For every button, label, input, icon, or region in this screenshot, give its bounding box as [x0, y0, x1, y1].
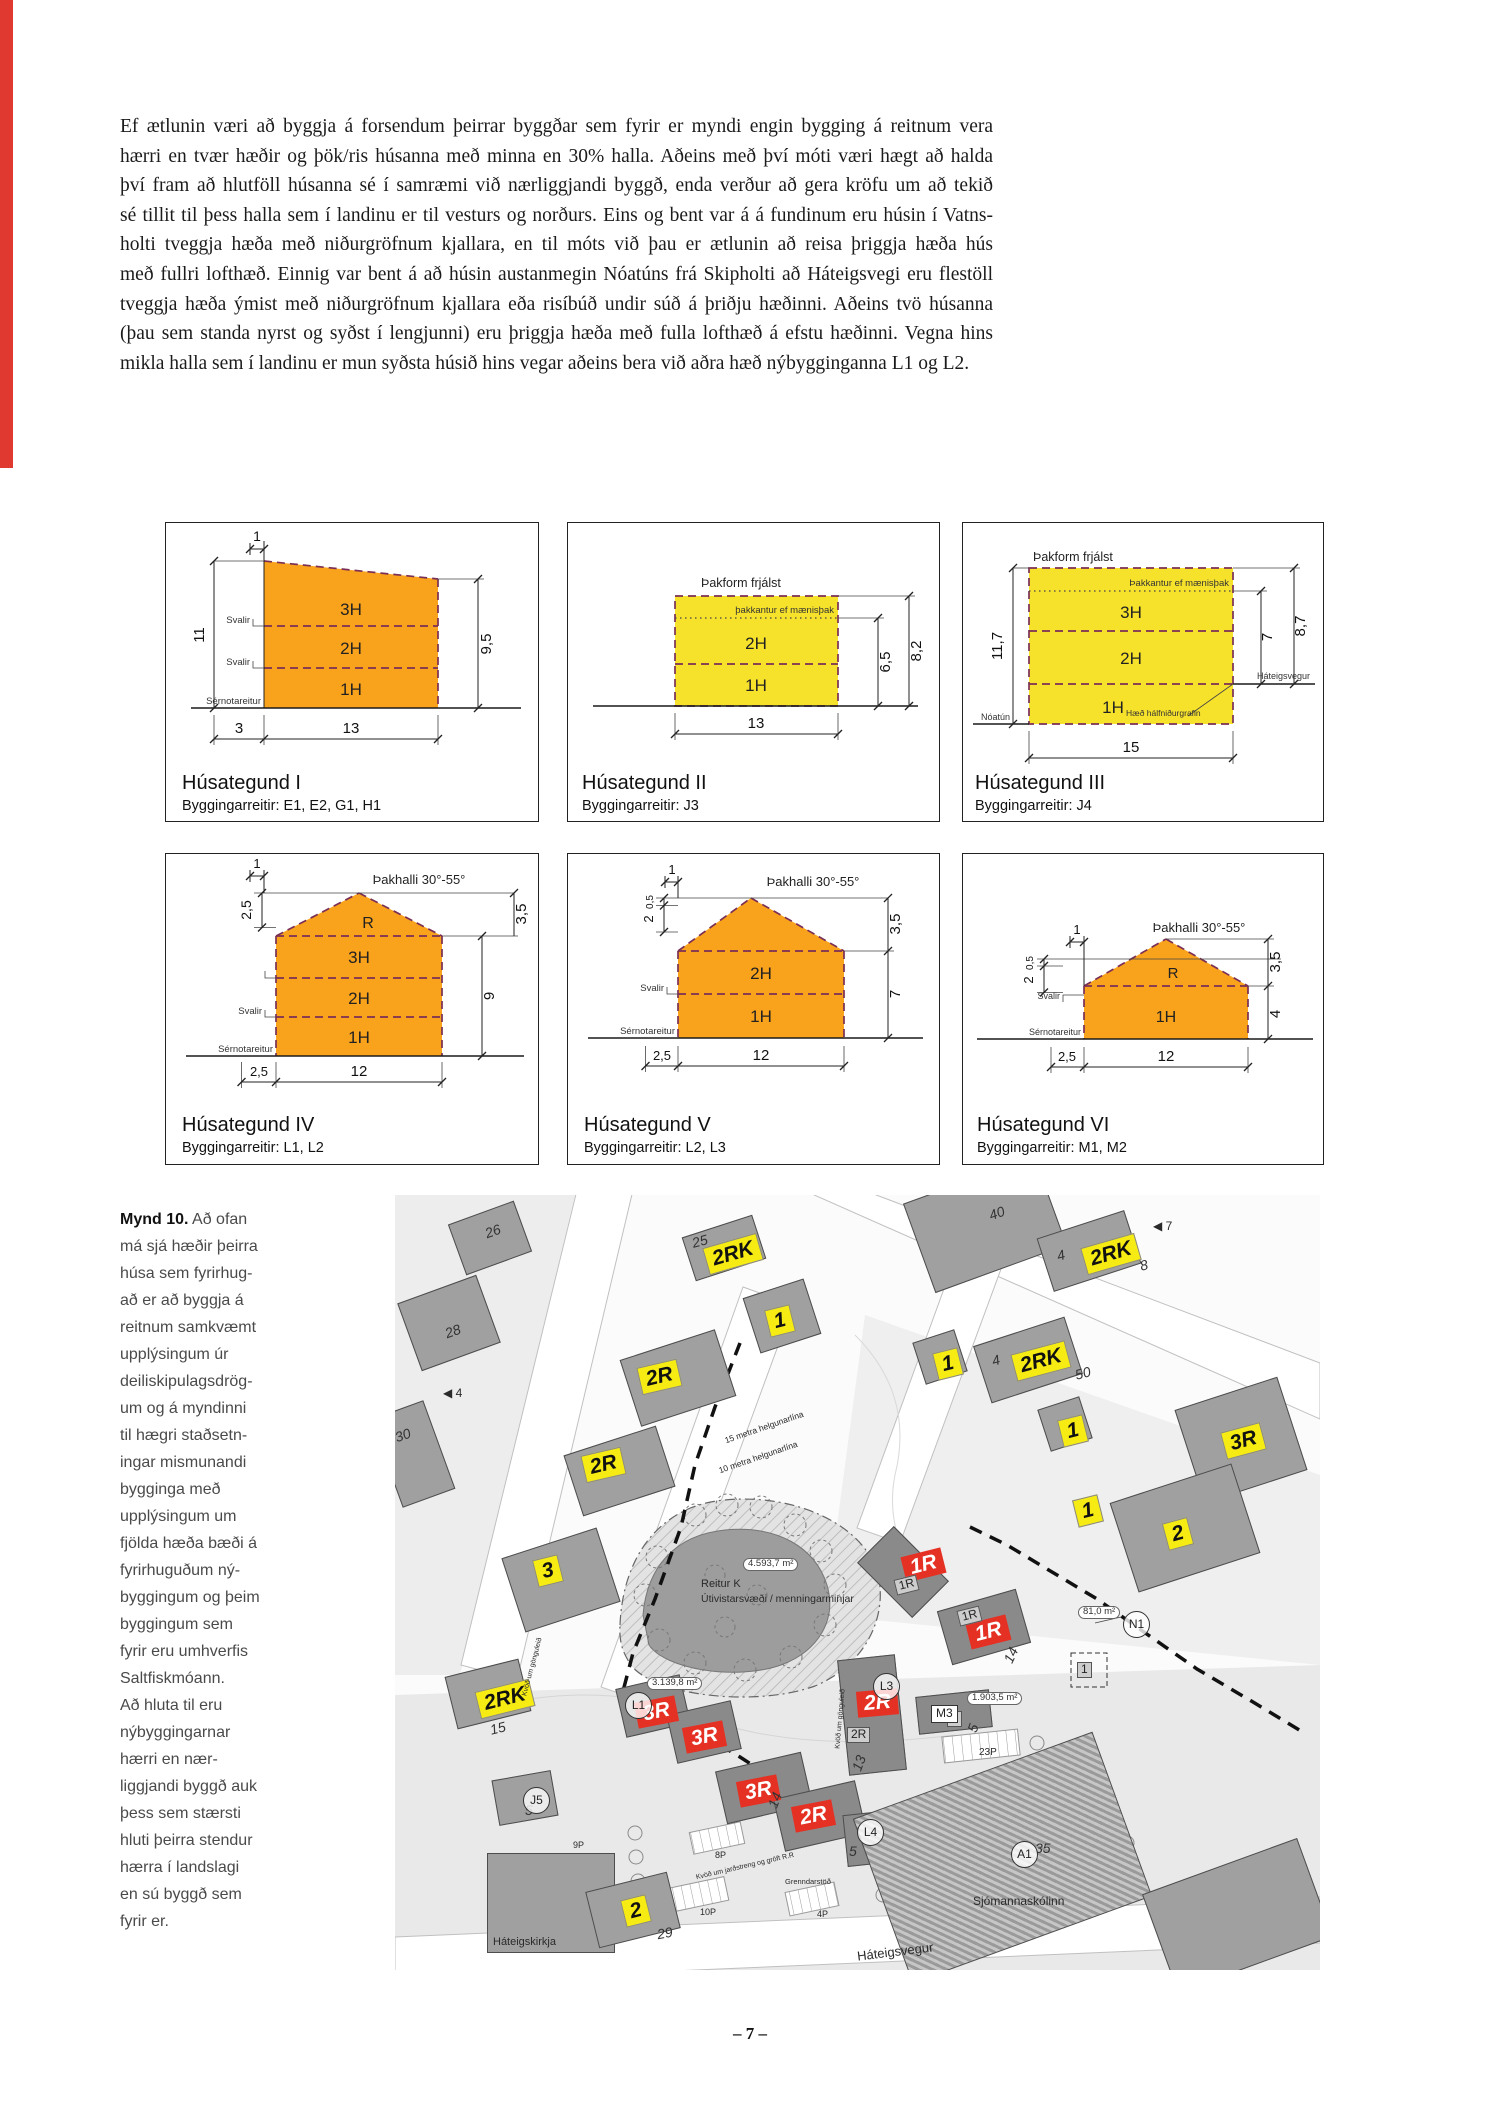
sernotareitur-label: Sérnotareitur	[620, 1026, 675, 1037]
map-label-l1: L1	[625, 1692, 652, 1719]
diagram-title: Húsategund V	[584, 1114, 711, 1136]
street-label-hateigsvegur: Háteigsvegur	[1257, 671, 1310, 681]
svg-text:1H: 1H	[750, 1007, 772, 1026]
roof-note: Þakhalli 30°-55°	[767, 874, 860, 889]
map-label-1: 1	[932, 1347, 964, 1381]
svg-text:7: 7	[1259, 633, 1276, 641]
map-label-13: 13	[849, 1753, 869, 1773]
roof-note: Þakform frjálst	[701, 576, 781, 590]
map-label-1r: 1R	[893, 1574, 919, 1595]
map-label-1: 1	[764, 1304, 796, 1338]
map-label-2rk: 2RK	[1080, 1233, 1142, 1275]
map-label-2: 2	[620, 1894, 652, 1928]
roof-label: R	[1168, 965, 1179, 982]
side-labels: Svalir Sérnotareitur	[218, 971, 276, 1055]
diagram-box-husategund-i: Svalir Svalir Sérnotareitur 3H 2H 1H 1 1…	[165, 522, 539, 822]
map-label-10-metra-helgunarl-na: 10 metra helgunarlína	[718, 1440, 799, 1476]
svg-text:1H: 1H	[1156, 1009, 1176, 1026]
diagram-husategund-vi-drawing: Svalir Sérnotareitur Þakhalli 30°-55° R …	[963, 854, 1320, 1161]
map-label-l3: L3	[873, 1673, 900, 1700]
diagram-subtitle: Byggingarreitir: M1, M2	[977, 1140, 1127, 1156]
svg-text:1: 1	[1073, 922, 1080, 937]
map-label-kv-um-jar-streng-og-gr-ft-r-r: Kvöð um jarðstreng og gröft R.R	[695, 1852, 795, 1882]
map-label-5: 5	[849, 1843, 857, 1859]
svg-text:15: 15	[1123, 739, 1140, 756]
diagram-subtitle: Byggingarreitir: E1, E2, G1, H1	[182, 798, 381, 814]
map-label-81-0-m: 81,0 m²	[1078, 1606, 1120, 1619]
paragraph-line: mikla halla sem í landinu er mun syðsta …	[120, 349, 993, 379]
svg-text:2,5: 2,5	[653, 1048, 671, 1063]
paragraph-line: því fram að hlutföll húsanna sé í samræm…	[120, 171, 993, 201]
svg-text:3H: 3H	[348, 948, 370, 967]
figure-caption-text: Að ofan má sjá hæðir þeirra húsa sem fyr…	[120, 1211, 260, 1930]
map-label-8p: 8P	[715, 1850, 726, 1860]
map-label-4p: 4P	[817, 1909, 828, 1919]
svg-text:1: 1	[253, 528, 261, 544]
roof-note: Þakform frjálst	[1033, 550, 1113, 564]
page-number: – 7 –	[700, 2024, 800, 2044]
map-label-14: 14	[1000, 1645, 1021, 1666]
map-label-1: 1	[1057, 1414, 1089, 1448]
map-label-kv-um-g-ngulei: Kvöð um gönguleið	[834, 1689, 847, 1749]
street-label-noatun: Nóatún	[981, 712, 1010, 722]
roof-label: R	[362, 915, 374, 932]
svg-text:11,7: 11,7	[989, 632, 1006, 660]
map-label-50: 50	[1073, 1363, 1092, 1383]
svg-text:7: 7	[887, 990, 904, 998]
map-label-l4: L4	[857, 1819, 884, 1846]
map-label-26: 26	[483, 1221, 503, 1241]
svg-text:1H: 1H	[1102, 698, 1124, 717]
map-label-1: 1	[1072, 1494, 1104, 1528]
svalir-label: Svalir	[226, 615, 250, 626]
map-label-7: ◀ 7	[1153, 1220, 1172, 1234]
diagram-box-husategund-iv: Svalir Sérnotareitur Þakhalli 30°-55° R …	[165, 853, 539, 1165]
diagram-subtitle: Byggingarreitir: L2, L3	[584, 1140, 726, 1156]
map-label-sj-mannask-linn: Sjómannaskólinn	[973, 1895, 1064, 1909]
map-label-a1: A1	[1011, 1841, 1038, 1868]
map-label-40: 40	[987, 1203, 1007, 1223]
diagram-husategund-iv-drawing: Svalir Sérnotareitur Þakhalli 30°-55° R …	[166, 854, 535, 1161]
svg-text:3,5: 3,5	[887, 914, 904, 935]
svalir-label: Svalir	[238, 1006, 262, 1017]
map-label-4: 4	[990, 1351, 1002, 1369]
map-label-3-139-8-m: 3.139,8 m²	[647, 1677, 702, 1690]
map-label-15: 15	[488, 1718, 507, 1737]
diagram-subtitle: Byggingarreitir: J4	[975, 798, 1092, 814]
side-labels: Svalir Sérnotareitur	[620, 983, 678, 1037]
map-label-4: ◀ 4	[443, 1387, 462, 1401]
svg-text:2H: 2H	[340, 639, 362, 658]
roof-note: Þakhalli 30°-55°	[373, 872, 466, 887]
map-label-23p: 23P	[979, 1747, 997, 1759]
svg-text:8,7: 8,7	[1292, 616, 1309, 637]
paragraph-line: (þau sem standa nyrst og syðst í lengjun…	[120, 319, 993, 349]
svg-text:1H: 1H	[348, 1028, 370, 1047]
side-labels: Svalir Svalir Sérnotareitur	[206, 615, 264, 707]
svg-text:13: 13	[343, 720, 360, 737]
half-buried-note: Hæð hálfniðurgrafin	[1126, 708, 1201, 718]
intro-paragraph: Ef ætlunin væri að byggja á forsendum þe…	[120, 112, 993, 378]
site-plan-map: 2RK12R2R32RK2RK13R1122RK21R1R2R3R3R3R2R2…	[395, 1195, 1320, 1970]
svg-text:2H: 2H	[1120, 649, 1142, 668]
svg-text:3: 3	[235, 720, 243, 737]
map-label-kv-um-g-ngulei: Kvöð um gönguleið	[521, 1637, 544, 1697]
map-label-2r: 2R	[580, 1447, 626, 1484]
diagram-box-husategund-v: Svalir Sérnotareitur Þakhalli 30°-55° 2H…	[567, 853, 940, 1165]
diagram-subtitle: Byggingarreitir: J3	[582, 798, 699, 814]
svg-text:13: 13	[748, 715, 765, 732]
svg-text:2: 2	[1021, 976, 1036, 983]
svg-text:2,5: 2,5	[1058, 1049, 1076, 1064]
svg-text:0,5: 0,5	[645, 895, 656, 909]
diagram-title: Húsategund IV	[182, 1114, 315, 1136]
ridge-note: Þakkantur ef mænisþak	[1129, 578, 1229, 589]
map-label-2r: 2R	[636, 1359, 682, 1396]
paragraph-line: tveggja hæða ýmist með niðurgröfnum kjal…	[120, 290, 993, 320]
map-label-j5: J5	[523, 1787, 550, 1814]
map-label-4-593-7-m: 4.593,7 m²	[743, 1558, 798, 1571]
diagram-box-husategund-vi: Svalir Sérnotareitur Þakhalli 30°-55° R …	[962, 853, 1324, 1165]
svg-text:12: 12	[1158, 1048, 1175, 1065]
diagram-title: Húsategund III	[975, 772, 1105, 794]
diagram-subtitle: Byggingarreitir: L1, L2	[182, 1140, 324, 1156]
paragraph-line: með fullri lofthæð. Einnig var bent á að…	[120, 260, 993, 290]
svg-text:1H: 1H	[745, 676, 767, 695]
map-label-2: 2	[1162, 1517, 1194, 1551]
document-page: Ef ætlunin væri að byggja á forsendum þe…	[0, 0, 1500, 2122]
svg-text:3,5: 3,5	[1267, 952, 1284, 973]
level-labels: 3H 2H 1H	[340, 600, 362, 699]
map-label-3r: 3R	[682, 1720, 727, 1753]
svg-text:0,5: 0,5	[1025, 956, 1036, 970]
diagram-box-husategund-ii: Þakform frjálst þakkantur ef mænisþak 2H…	[567, 522, 940, 822]
svg-text:12: 12	[351, 1063, 368, 1080]
map-label-2r: 2R	[791, 1799, 836, 1832]
diagram-husategund-v-drawing: Svalir Sérnotareitur Þakhalli 30°-55° 2H…	[568, 854, 936, 1161]
diagram-title: Húsategund VI	[977, 1114, 1109, 1136]
map-label-h-teigskirkja: Háteigskirkja	[493, 1936, 556, 1949]
map-label-30: 30	[395, 1425, 413, 1445]
paragraph-line: Ef ætlunin væri að byggja á forsendum þe…	[120, 112, 993, 142]
sernotareitur-label: Sérnotareitur	[206, 696, 261, 707]
figure-caption: Mynd 10. Að ofan má sjá hæðir þeirra hús…	[120, 1206, 278, 1935]
roof-note: Þakhalli 30°-55°	[1153, 920, 1246, 935]
svg-text:2H: 2H	[750, 964, 772, 983]
svg-text:1: 1	[253, 856, 260, 871]
map-labels-layer: 2RK12R2R32RK2RK13R1122RK21R1R2R3R3R3R2R2…	[395, 1195, 1320, 1970]
svalir-label: Svalir	[640, 983, 664, 994]
svg-text:2,5: 2,5	[238, 900, 254, 920]
svg-text:2H: 2H	[745, 634, 767, 653]
map-label-28: 28	[443, 1321, 463, 1341]
svg-text:6,5: 6,5	[877, 652, 894, 673]
map-label-5: 5	[964, 1722, 982, 1735]
map-label-29: 29	[656, 1924, 674, 1943]
svg-text:9,5: 9,5	[478, 634, 495, 655]
diagram-box-husategund-iii: Þakform frjálst Þakkantur ef mænisþak 3H…	[962, 522, 1324, 822]
map-label-h-teigsvegur: Háteigsvegur	[856, 1940, 934, 1964]
paragraph-line: holti tveggja hæða með niðurgröfnum kjal…	[120, 230, 993, 260]
svg-text:8,2: 8,2	[908, 641, 925, 662]
diagram-title: Húsategund I	[182, 772, 301, 794]
svg-text:2,5: 2,5	[250, 1064, 268, 1079]
map-label-1: 1	[1077, 1662, 1092, 1678]
map-label-tivistarsv-i-menningarminjar: Útivistarsvæði / menningarminjar	[701, 1593, 854, 1605]
building-shape	[1029, 568, 1233, 724]
page-edge-red-bar	[0, 0, 13, 468]
map-label-n1: N1	[1123, 1611, 1150, 1638]
map-label-8: 8	[1138, 1256, 1150, 1274]
map-label-9p: 9P	[573, 1840, 584, 1850]
svg-text:4: 4	[1267, 1010, 1284, 1018]
map-label-2r: 2R	[847, 1727, 870, 1743]
map-label-reitur-k: Reitur K	[701, 1578, 741, 1591]
svg-text:2: 2	[641, 915, 656, 922]
paragraph-line: hærri en tvær hæðir og þök/ris húsanna m…	[120, 142, 993, 172]
map-label-2rk: 2RK	[702, 1233, 764, 1275]
map-label-4: 4	[1055, 1246, 1067, 1264]
svalir-label: Svalir	[226, 657, 250, 668]
diagram-husategund-iii-drawing: Þakform frjálst Þakkantur ef mænisþak 3H…	[963, 523, 1320, 818]
svg-text:3H: 3H	[1120, 603, 1142, 622]
map-label-2rk: 2RK	[1010, 1340, 1071, 1382]
svg-text:2H: 2H	[348, 989, 370, 1008]
svg-text:9: 9	[481, 992, 498, 1000]
svg-text:3,5: 3,5	[513, 904, 530, 925]
sernotareitur-label: Sérnotareitur	[218, 1044, 273, 1055]
figure-caption-label: Mynd 10.	[120, 1211, 188, 1228]
map-label-3r: 3R	[1220, 1422, 1267, 1460]
map-label-grenndarst: Grenndarstöð	[785, 1878, 831, 1887]
svg-text:3H: 3H	[340, 600, 362, 619]
map-label-14: 14	[765, 1790, 785, 1810]
map-label-10p: 10P	[700, 1907, 716, 1917]
diagram-husategund-ii-drawing: Þakform frjálst þakkantur ef mænisþak 2H…	[568, 523, 936, 818]
svg-text:1: 1	[668, 862, 675, 877]
svg-text:12: 12	[753, 1047, 770, 1064]
map-label-3: 3	[532, 1554, 564, 1588]
paragraph-line: sé tillit til þess halla sem í landinu e…	[120, 201, 993, 231]
map-label-1-903-5-m: 1.903,5 m²	[967, 1692, 1022, 1705]
side-labels: Svalir Sérnotareitur	[1029, 991, 1084, 1037]
diagram-title: Húsategund II	[582, 772, 707, 794]
diagram-husategund-i-drawing: Svalir Svalir Sérnotareitur 3H 2H 1H 1 1…	[166, 523, 535, 818]
svg-text:11: 11	[191, 627, 208, 643]
map-label-m3: M3	[931, 1705, 958, 1723]
ridge-note: þakkantur ef mænisþak	[735, 605, 834, 616]
svg-text:1H: 1H	[340, 680, 362, 699]
svalir-label: Svalir	[1037, 991, 1060, 1001]
sernotareitur-label: Sérnotareitur	[1029, 1027, 1081, 1037]
